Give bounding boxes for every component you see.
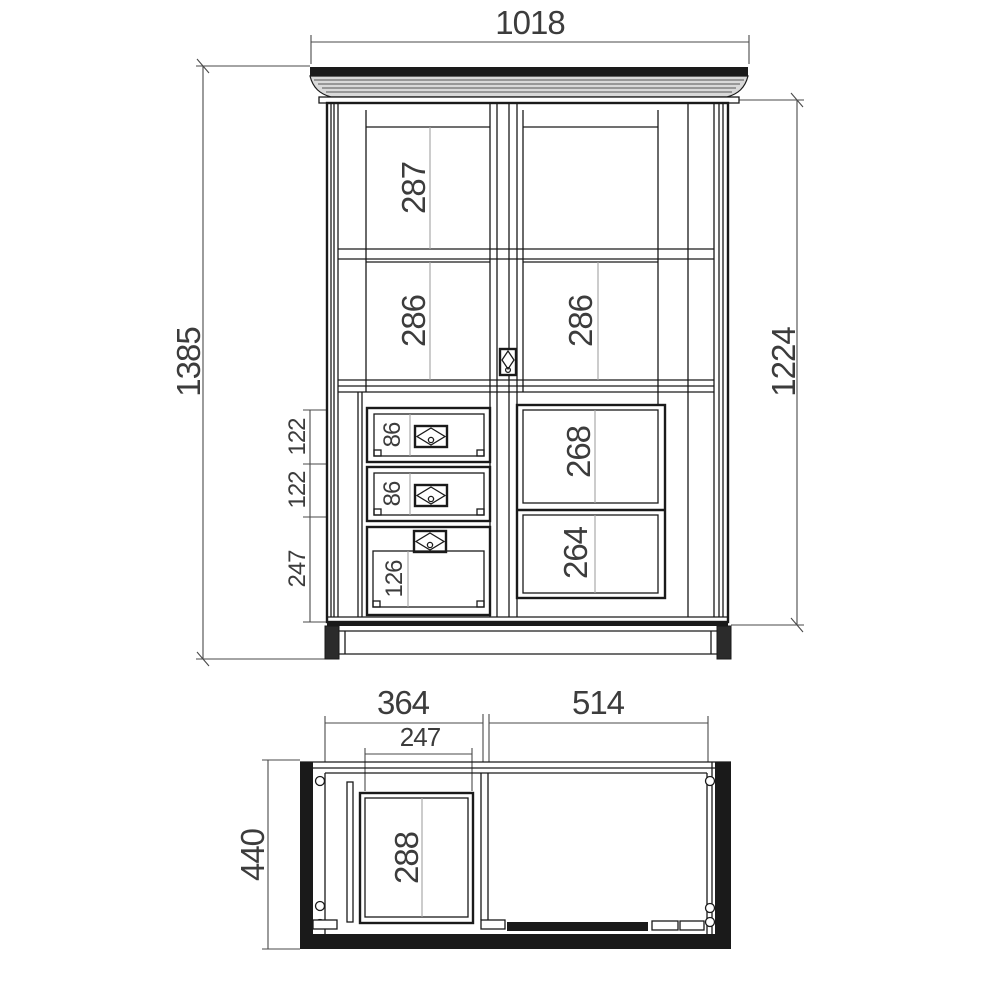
lower-left-door: 126 [367, 527, 490, 615]
dim-mid-shelf-right-label: 286 [562, 295, 599, 347]
dim-right-compartment-label: 514 [572, 684, 625, 721]
drawer-1: 86 [367, 408, 490, 462]
front-view: 1018 1385 1224 122 122 247 [170, 4, 804, 666]
dim-body-height-label: 1224 [765, 327, 802, 397]
dim-right-panel-lower-label: 264 [557, 526, 594, 579]
plan-sliding-door [507, 922, 648, 931]
dim-depth: 440 [234, 760, 300, 949]
furniture-dimension-drawing: 1018 1385 1224 122 122 247 [0, 0, 1000, 1000]
dim-depth-label: 440 [234, 828, 271, 881]
cabinet-plinth [325, 626, 731, 659]
lower-door-handle-icon [414, 531, 446, 552]
hinge-pin-icon [316, 777, 325, 786]
dim-lower-section-label: 247 [284, 550, 311, 588]
plan-divider [481, 773, 505, 929]
drawer-2: 86 [367, 467, 490, 521]
door-lock-escutcheon [500, 349, 516, 375]
plinth-foot-right [717, 626, 731, 659]
dim-right-panel-upper-label: 268 [560, 426, 597, 478]
dim-plan-drawer-width: 247 [365, 722, 472, 791]
dim-drawer-depth-label: 288 [388, 832, 425, 884]
dim-drawer-pitch-1-label: 122 [284, 418, 311, 456]
dim-overall-width: 1018 [311, 4, 749, 64]
dim-mid-shelf-left-label: 286 [395, 295, 432, 347]
plan-wall-left [300, 762, 313, 949]
right-lower-panels: 268 264 [517, 405, 665, 598]
hinge-pin-icon [706, 904, 715, 913]
hinge-pin-icon [706, 918, 715, 927]
dim-plan-widths: 364 514 [325, 684, 708, 762]
plinth-foot-left [325, 626, 339, 659]
plan-wall-bottom [300, 934, 731, 949]
dim-left-compartment-label: 364 [377, 684, 430, 721]
dim-body-height: 1224 [729, 93, 804, 632]
dim-plan-drawer-width-label: 247 [400, 722, 441, 752]
dim-drawer-front-2-label: 86 [379, 481, 406, 506]
plan-left-compartment: 288 [313, 782, 473, 929]
dim-drawer-pitch-2-label: 122 [284, 471, 311, 509]
drawer-2-handle-icon [415, 485, 447, 506]
hinge-pin-icon [316, 902, 325, 911]
cabinet-crown [310, 67, 748, 103]
hinge-pin-icon [706, 777, 715, 786]
dim-overall-height-label: 1385 [170, 327, 207, 396]
dim-overall-width-label: 1018 [495, 4, 564, 41]
plan-door-edge [347, 782, 353, 922]
dim-top-shelf-label: 287 [395, 162, 432, 214]
dim-drawer-front-1-label: 86 [379, 422, 406, 447]
plan-wall-right [715, 762, 731, 949]
crown-cove-molding [310, 76, 748, 97]
crown-top-board [310, 67, 748, 76]
drawing-canvas: 1018 1385 1224 122 122 247 [0, 0, 1000, 1000]
plan-view: 364 514 247 440 [234, 684, 731, 949]
plan-drawer-box: 288 [360, 793, 473, 923]
dim-lower-door-panel-label: 126 [381, 560, 408, 598]
plan-right-compartment [507, 921, 704, 931]
drawer-1-handle-icon [415, 426, 447, 447]
